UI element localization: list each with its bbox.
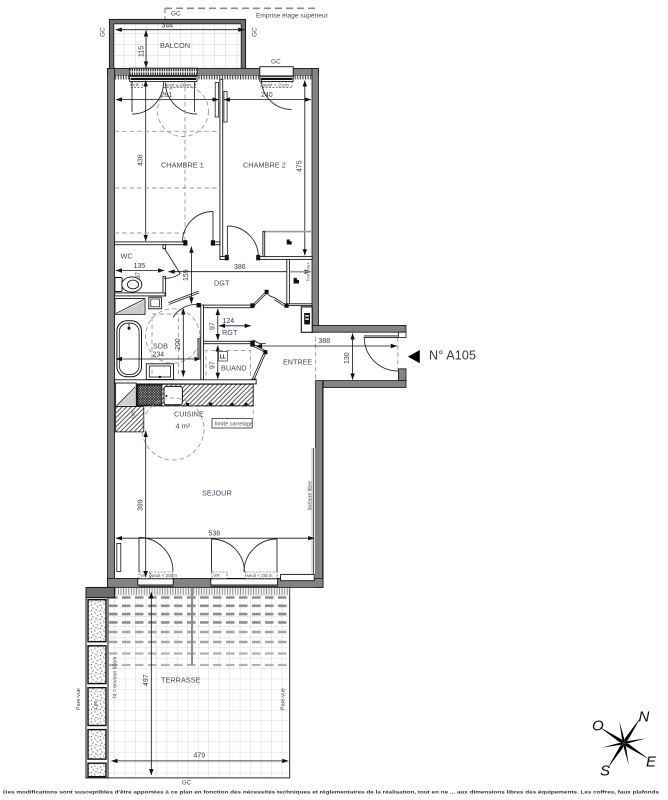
svg-text:CHAMBRE 2: CHAMBRE 2 [243,161,286,170]
svg-text:4 m²: 4 m² [176,422,191,431]
svg-text:seuil < 15cm: seuil < 15cm [165,82,191,87]
svg-text:E: E [646,754,657,771]
svg-text:124: 124 [223,318,235,325]
svg-text:240: 240 [261,92,273,99]
svg-text:DGT: DGT [214,279,230,288]
svg-text:1,80: 1,80 [93,701,98,710]
svg-text:399: 399 [138,499,145,511]
svg-text:BALCON: BALCON [160,41,190,50]
svg-text:538: 538 [209,531,221,538]
svg-text:388: 388 [319,338,331,345]
svg-text:N: N [639,709,650,726]
svg-text:VR: VR [213,573,220,578]
svg-text:SEJOUR: SEJOUR [202,489,232,498]
svg-text:CHAMBRE 1: CHAMBRE 1 [161,161,204,170]
svg-text:TERRASSE: TERRASSE [161,676,201,685]
svg-text:159: 159 [183,269,190,281]
svg-text:Des modifications sont suscept: Des modifications sont susceptibles d'êt… [3,790,660,795]
svg-text:97: 97 [210,361,217,369]
svg-text:Pare-vue: Pare-vue [76,688,82,710]
svg-text:97: 97 [210,322,217,330]
svg-text:S: S [600,763,610,780]
svg-text:seuil < 20cm: seuil < 20cm [151,573,177,578]
svg-text:BUAND: BUAND [221,364,247,373]
svg-text:GC: GC [100,27,107,37]
svg-text:VR: VR [133,82,140,87]
svg-text:479: 479 [194,753,206,760]
svg-text:475: 475 [297,160,304,172]
svg-text:O: O [592,718,604,735]
svg-text:VR: VR [140,573,147,578]
svg-text:115: 115 [139,46,146,57]
svg-text:WC: WC [121,252,133,261]
svg-text:limite carrelage: limite carrelage [215,422,253,428]
svg-text:Emprise étage supérieur: Emprise étage supérieur [256,13,329,20]
svg-text:CUISINE: CUISINE [174,410,204,419]
svg-text:seuil < 20cm: seuil < 20cm [247,573,273,578]
svg-text:linéaire libre: linéaire libre [308,481,314,510]
svg-text:seuil < 15cm: seuil < 15cm [263,82,289,87]
svg-text:LL: LL [220,355,226,361]
svg-text:fourreaux: fourreaux [306,262,311,281]
svg-text:SDB: SDB [153,342,168,351]
svg-text:Pare-vue: Pare-vue [281,688,287,710]
svg-text:N° A105: N° A105 [429,349,476,363]
svg-text:GC: GC [252,27,259,37]
svg-text:RGT: RGT [222,328,238,337]
svg-text:GC: GC [171,11,181,18]
svg-text:ENTREE: ENTREE [283,358,312,367]
svg-text:436: 436 [138,154,145,166]
svg-text:497: 497 [143,674,150,686]
svg-text:GC: GC [182,781,192,787]
svg-text:386: 386 [234,264,246,271]
svg-text:200: 200 [175,338,182,350]
svg-text:120: 120 [131,411,136,419]
svg-text:234: 234 [153,352,165,359]
svg-text:344: 344 [162,22,174,29]
svg-text:281: 281 [161,92,173,99]
svg-text:130: 130 [344,352,351,364]
svg-text:GC: GC [271,59,281,66]
svg-text:135: 135 [134,263,146,270]
svg-text:ht = environ 60cm: ht = environ 60cm [113,657,119,698]
